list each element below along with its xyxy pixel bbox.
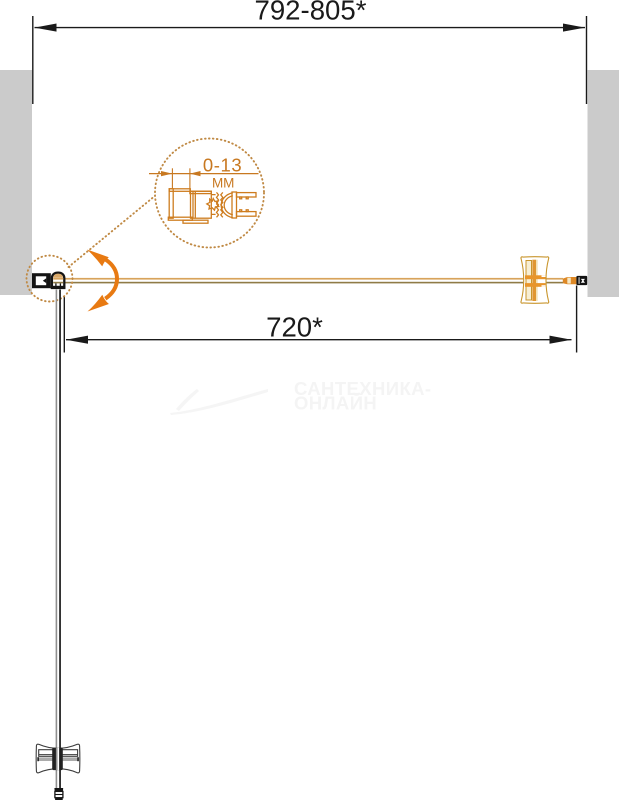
svg-text:792-805*: 792-805* [254,0,366,26]
svg-text:ОНЛАЙН: ОНЛАЙН [294,393,377,414]
svg-text:720*: 720* [266,311,323,342]
svg-text:ММ: ММ [212,176,235,191]
svg-text:0-13: 0-13 [203,155,242,176]
